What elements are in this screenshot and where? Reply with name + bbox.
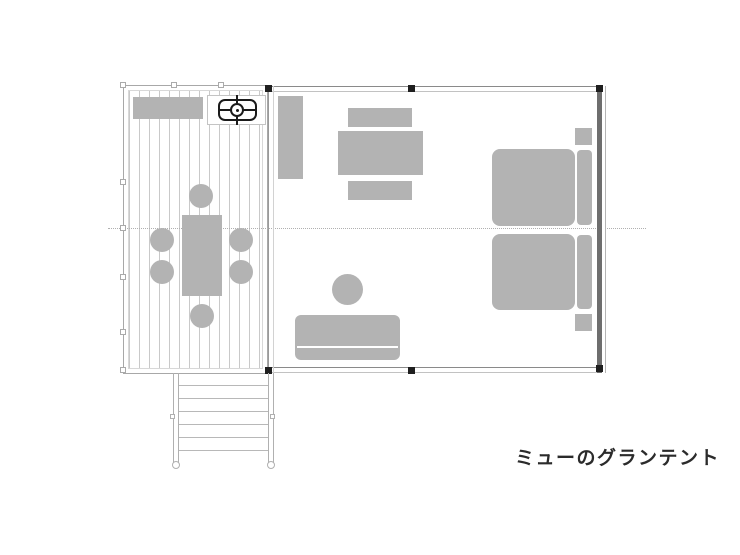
stove-burner-dot [236,109,239,112]
deck-post-marker [120,179,126,185]
tent-wall-bottom [268,367,606,373]
tent-wall-right [597,86,606,373]
deck-chair [229,228,253,252]
deck-post-marker [120,274,126,280]
indoor-table [338,131,423,175]
entry-steps [179,373,268,463]
steps-rail-marker [170,414,175,419]
deck-chair [190,304,214,328]
sofa [295,315,400,360]
steps-rail-right [268,373,274,465]
pillow-top [577,150,592,225]
deck-chair [150,228,174,252]
bed-top [492,149,575,226]
bed-bottom [492,234,575,310]
indoor-bench-top [348,108,412,127]
steps-foot [172,461,180,469]
tent-pole-marker [596,365,603,372]
deck-bench [133,97,203,119]
deck-post-marker [120,367,126,373]
deck-dining-table [182,215,222,296]
tent-pole-marker [265,85,272,92]
plan-title: ミューのグランテント [515,443,720,470]
indoor-bench-bottom [348,181,412,200]
tent-pole-marker [408,85,415,92]
pillow-bottom [577,235,592,309]
deck-post-marker [120,82,126,88]
tent-wall-left [268,86,274,373]
sofa-seat-divider [297,346,398,348]
deck-post-marker [218,82,224,88]
deck-post-marker [120,225,126,231]
floor-plan: ミューのグランテント [0,0,740,555]
tent-pole-marker [408,367,415,374]
tent-wall-top [268,86,606,92]
deck-chair [189,184,213,208]
ottoman [332,274,363,305]
tent-pole-marker [596,85,603,92]
deck-chair [150,260,174,284]
steps-rail-marker [270,414,275,419]
steps-rail-left [173,373,179,465]
deck-post-marker [120,329,126,335]
steps-foot [267,461,275,469]
deck-chair [229,260,253,284]
nightstand [575,314,592,331]
deck-post-marker [171,82,177,88]
storage-shelf [278,96,303,179]
nightstand [575,128,592,145]
